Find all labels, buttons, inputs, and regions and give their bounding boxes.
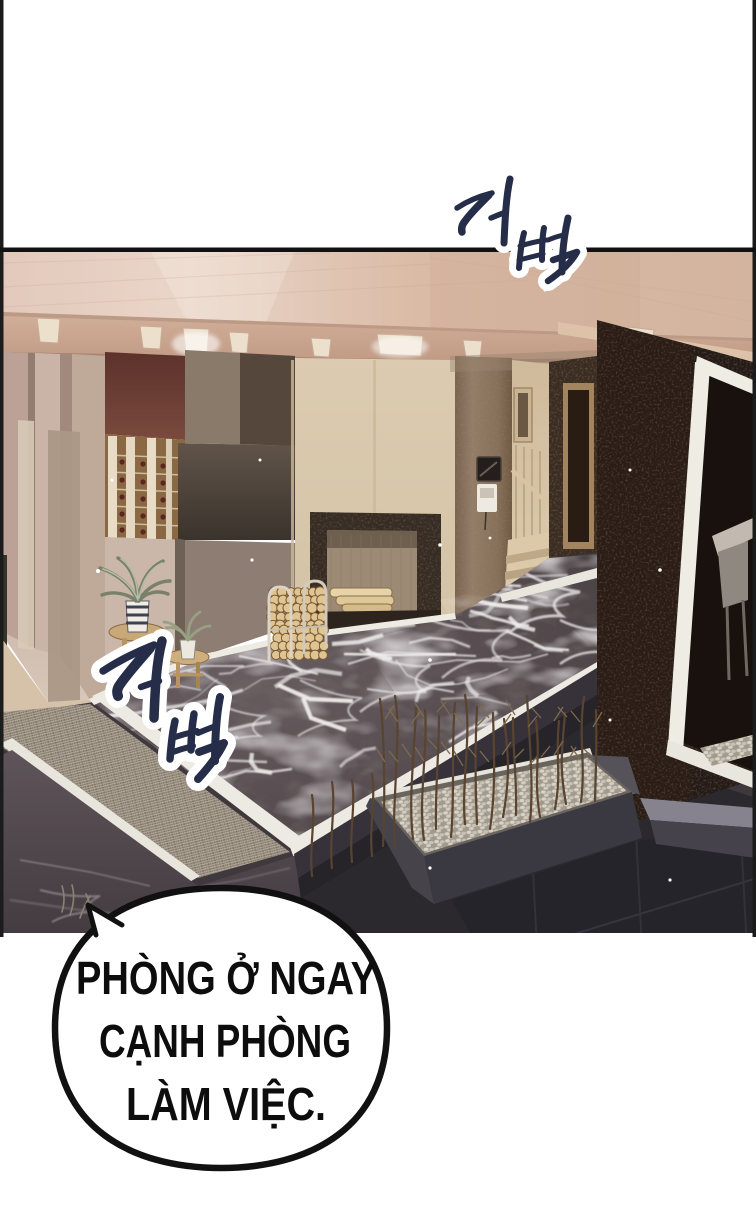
svg-text:LÀM VIỆC.: LÀM VIỆC. — [126, 1078, 326, 1130]
svg-text:PHÒNG Ở NGAY: PHÒNG Ở NGAY — [76, 952, 376, 1004]
svg-text:CẠNH PHÒNG: CẠNH PHÒNG — [99, 1015, 351, 1067]
